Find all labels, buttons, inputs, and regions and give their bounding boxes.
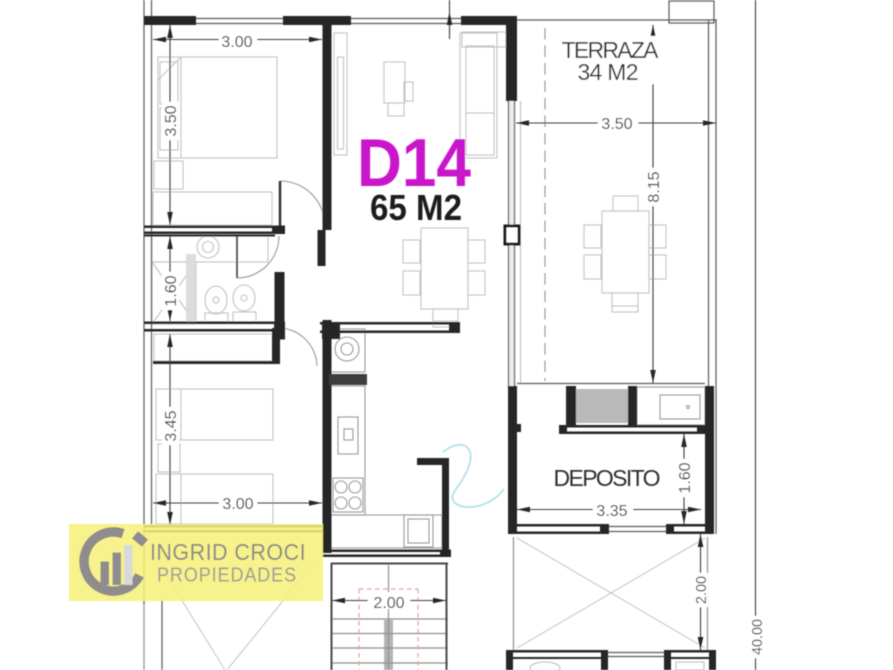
svg-text:65 M2: 65 M2 [370,187,462,228]
svg-text:INGRID CROCI: INGRID CROCI [150,539,306,565]
svg-text:34 M2: 34 M2 [578,59,639,85]
svg-text:8.15: 8.15 [646,171,663,202]
svg-text:3.00: 3.00 [221,34,252,51]
svg-text:PROPIEDADES: PROPIEDADES [157,565,297,587]
svg-text:3.50: 3.50 [163,105,180,136]
svg-text:DEPOSITO: DEPOSITO [554,465,661,491]
svg-text:1.60: 1.60 [677,462,694,493]
svg-text:3.00: 3.00 [222,496,253,513]
svg-text:3.50: 3.50 [601,116,632,133]
svg-text:1.60: 1.60 [163,275,180,306]
svg-text:2.00: 2.00 [373,595,404,612]
svg-text:2.00: 2.00 [694,576,710,604]
svg-text:3.45: 3.45 [163,410,180,441]
svg-text:3.35: 3.35 [596,503,627,520]
svg-text:40.00: 40.00 [750,619,766,655]
